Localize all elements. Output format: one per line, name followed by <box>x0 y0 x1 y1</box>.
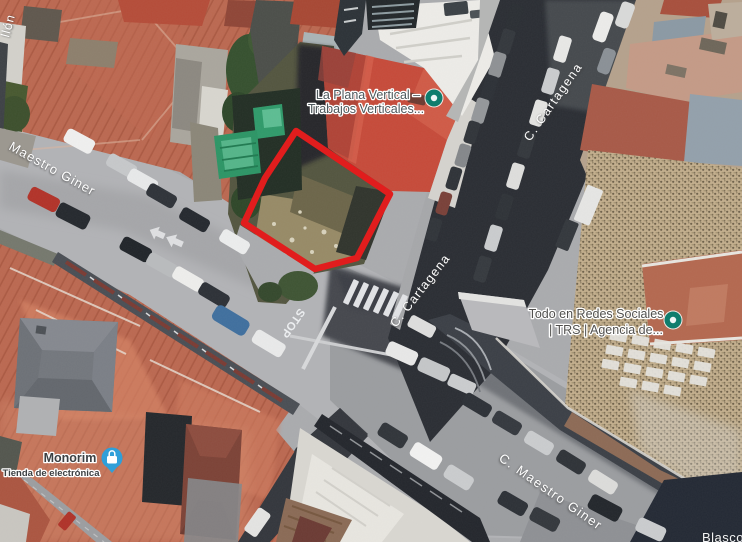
svg-text:La Plana Vertical –: La Plana Vertical – <box>316 88 420 102</box>
svg-text:Tienda de electrónica: Tienda de electrónica <box>3 468 101 479</box>
svg-text:Trabajos Verticales...: Trabajos Verticales... <box>308 102 424 116</box>
svg-text:Monorim: Monorim <box>44 451 97 465</box>
svg-text:Blasco: Blasco <box>702 530 742 542</box>
svg-text:| TRS | Agencia de...: | TRS | Agencia de... <box>549 323 663 337</box>
svg-text:Todo en Redes Sociales: Todo en Redes Sociales <box>529 307 664 321</box>
